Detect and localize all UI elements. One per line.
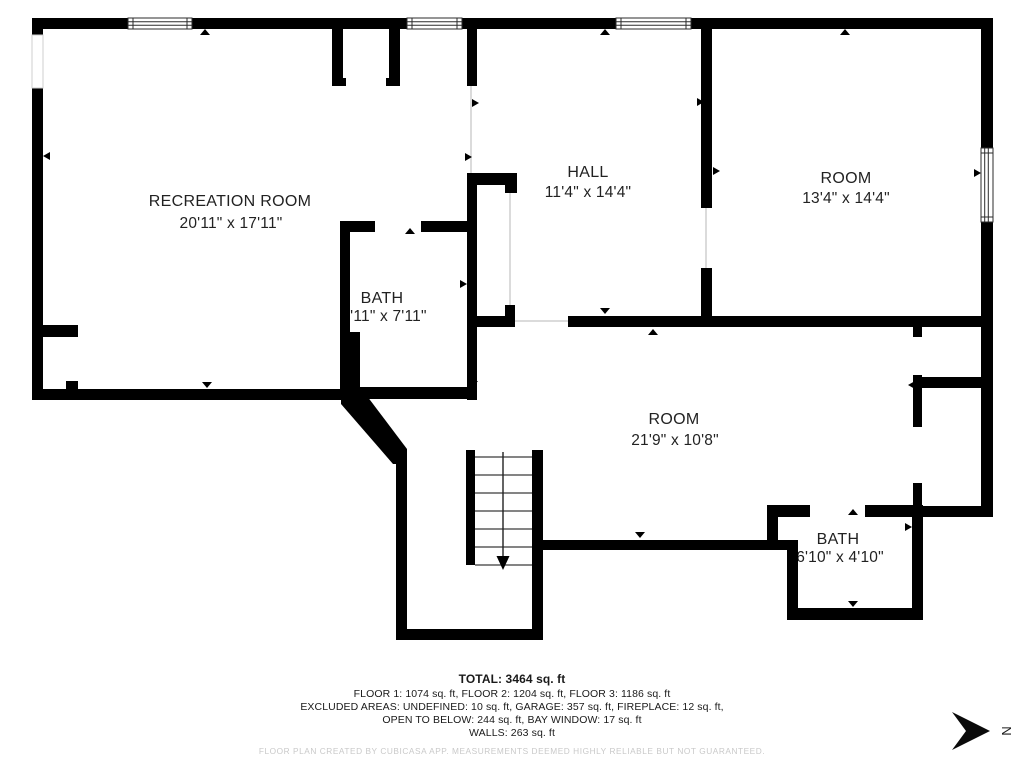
window-top-center <box>407 18 462 29</box>
summary-block: TOTAL: 3464 sq. ft FLOOR 1: 1074 sq. ft,… <box>259 672 765 756</box>
north-arrow-icon <box>952 712 990 750</box>
window-top-right <box>616 18 691 29</box>
summary-total: TOTAL: 3464 sq. ft <box>459 672 566 686</box>
compass-n-label: N <box>999 726 1014 735</box>
room-dims-room-upper: 13'4" x 14'4" <box>802 190 890 207</box>
room-label-recreation: RECREATION ROOM <box>149 193 311 210</box>
room-dims-bath-upper: 5'11" x 7'11" <box>341 308 426 325</box>
floor-plan-canvas: RECREATION ROOM 20'11" x 17'11" HALL 11'… <box>0 0 1024 768</box>
summary-excluded-2: OPEN TO BELOW: 244 sq. ft, BAY WINDOW: 1… <box>382 714 641 726</box>
disclaimer: FLOOR PLAN CREATED BY CUBICASA APP. MEAS… <box>259 746 765 756</box>
room-label-bath-lower: BATH <box>817 531 860 548</box>
summary-walls: WALLS: 263 sq. ft <box>469 727 555 739</box>
door-opening-lines <box>471 86 706 321</box>
room-label-bath-upper: BATH <box>361 290 404 307</box>
window-right-wall <box>981 148 993 222</box>
room-label-room-lower: ROOM <box>649 411 700 428</box>
room-dims-hall: 11'4" x 14'4" <box>545 184 631 201</box>
summary-floors: FLOOR 1: 1074 sq. ft, FLOOR 2: 1204 sq. … <box>354 688 671 700</box>
window-top-left <box>128 18 192 29</box>
room-label-room-upper: ROOM <box>821 170 872 187</box>
compass: N <box>952 712 1014 750</box>
floor-plan-page: RECREATION ROOM 20'11" x 17'11" HALL 11'… <box>0 0 1024 768</box>
staircase <box>475 452 532 570</box>
stairs-down-arrow-icon <box>497 556 510 570</box>
opening-left-wall <box>32 35 43 88</box>
summary-excluded-1: EXCLUDED AREAS: UNDEFINED: 10 sq. ft, GA… <box>300 701 723 713</box>
room-dims-bath-lower: 6'10" x 4'10" <box>796 549 884 566</box>
room-label-hall: HALL <box>567 164 608 181</box>
room-dims-room-lower: 21'9" x 10'8" <box>631 432 719 449</box>
room-dims-recreation: 20'11" x 17'11" <box>180 215 283 232</box>
